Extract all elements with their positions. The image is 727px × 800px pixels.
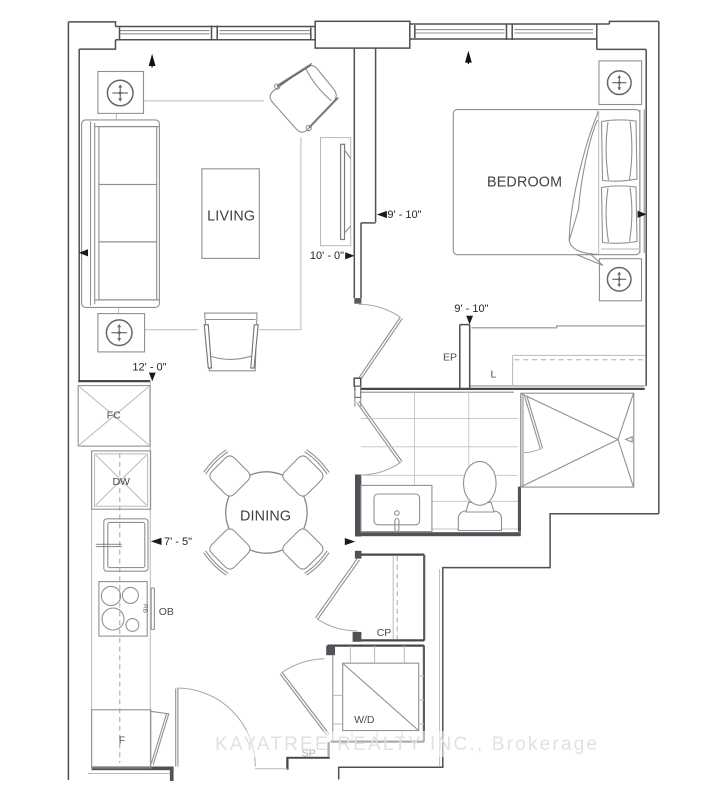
svg-text:FC: FC bbox=[107, 410, 121, 422]
svg-text:10' - 0": 10' - 0" bbox=[310, 250, 344, 262]
svg-text:DW: DW bbox=[112, 476, 130, 488]
svg-text:F: F bbox=[119, 735, 125, 747]
svg-text:W/D: W/D bbox=[354, 714, 375, 726]
svg-text:RB: RB bbox=[142, 604, 149, 613]
svg-text:BEDROOM: BEDROOM bbox=[487, 174, 562, 190]
svg-text:12' - 0": 12' - 0" bbox=[132, 362, 166, 374]
svg-text:9' - 10": 9' - 10" bbox=[454, 303, 488, 315]
svg-text:EP: EP bbox=[443, 351, 457, 363]
svg-text:7' - 5": 7' - 5" bbox=[164, 536, 192, 548]
svg-text:9' - 10": 9' - 10" bbox=[387, 209, 421, 221]
svg-text:LIVING: LIVING bbox=[207, 208, 255, 224]
svg-text:KAYATREE REALTY INC., Brokerag: KAYATREE REALTY INC., Brokerage bbox=[215, 734, 599, 755]
svg-text:L: L bbox=[490, 368, 496, 380]
svg-text:CP: CP bbox=[377, 627, 392, 639]
svg-text:OB: OB bbox=[159, 606, 174, 618]
svg-text:DINING: DINING bbox=[240, 509, 291, 525]
